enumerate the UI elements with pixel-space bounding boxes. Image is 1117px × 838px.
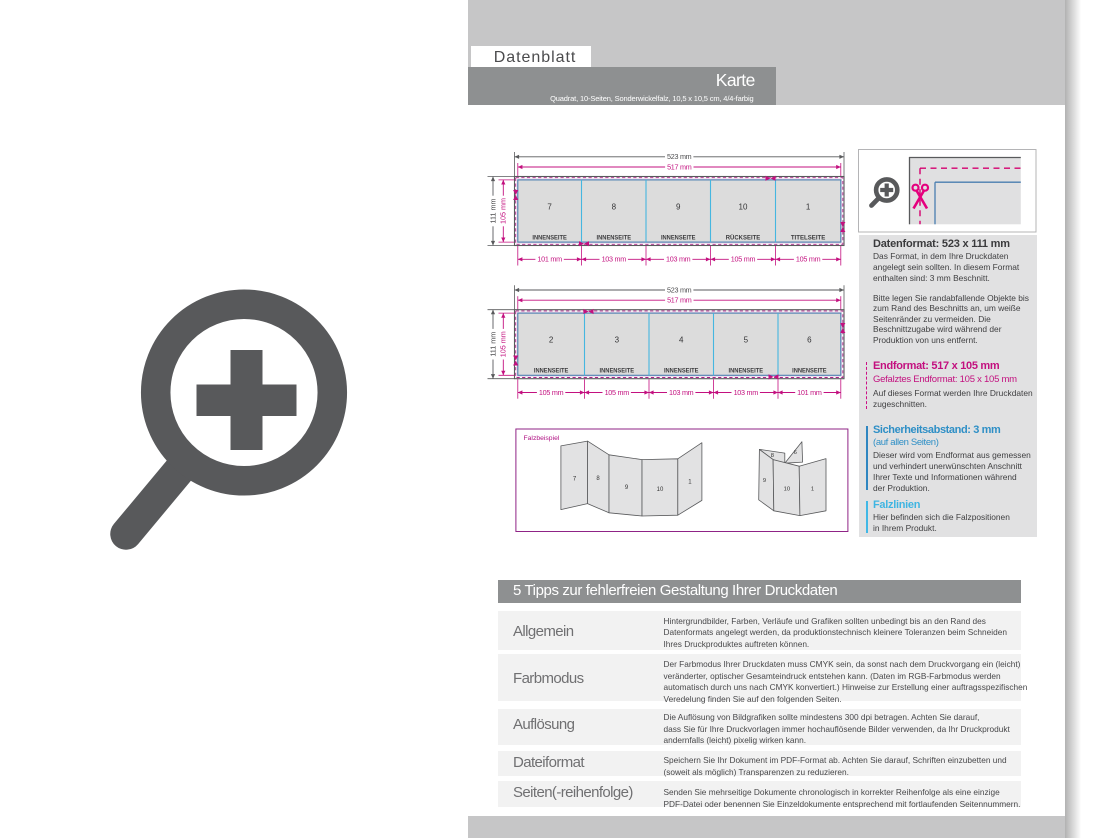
svg-text:INNENSEITE: INNENSEITE [600,368,635,375]
svg-text:Falzbeispiel: Falzbeispiel [524,435,560,442]
svg-text:523 mm: 523 mm [667,285,692,294]
svg-text:103 mm: 103 mm [669,388,694,397]
svg-text:111 mm: 111 mm [488,199,497,224]
svg-text:5: 5 [744,336,749,345]
svg-text:8: 8 [771,453,774,459]
svg-text:10: 10 [784,486,790,492]
svg-text:105 mm: 105 mm [539,388,564,397]
svg-text:1: 1 [806,203,811,212]
svg-text:3: 3 [615,336,620,345]
svg-text:10: 10 [657,487,664,493]
svg-text:103 mm: 103 mm [734,388,759,397]
svg-text:9: 9 [676,203,681,212]
svg-text:111 mm: 111 mm [488,332,497,357]
svg-text:105 mm: 105 mm [499,198,508,224]
svg-text:101 mm: 101 mm [537,255,562,264]
svg-text:6: 6 [807,336,812,345]
svg-text:INNENSEITE: INNENSEITE [729,368,764,375]
svg-text:517 mm: 517 mm [667,296,692,305]
svg-text:INNENSEITE: INNENSEITE [597,234,632,241]
svg-text:105 mm: 105 mm [796,255,821,264]
svg-text:105 mm: 105 mm [605,388,630,397]
svg-text:INNENSEITE: INNENSEITE [664,368,699,375]
svg-text:TITELSEITE: TITELSEITE [791,234,826,241]
svg-text:1: 1 [811,487,814,493]
svg-text:RÜCKSEITE: RÜCKSEITE [726,232,761,241]
svg-text:10: 10 [739,203,748,212]
svg-text:2: 2 [549,336,554,345]
svg-text:INNENSEITE: INNENSEITE [532,234,567,241]
svg-text:105 mm: 105 mm [499,331,508,357]
svg-text:8: 8 [612,203,617,212]
svg-text:9: 9 [763,478,766,484]
svg-text:523 mm: 523 mm [667,152,692,161]
svg-text:6: 6 [794,450,797,456]
svg-text:INNENSEITE: INNENSEITE [534,368,569,375]
svg-text:103 mm: 103 mm [602,255,627,264]
svg-text:7: 7 [547,203,552,212]
svg-text:INNENSEITE: INNENSEITE [661,234,696,241]
svg-text:103 mm: 103 mm [666,255,691,264]
svg-text:517 mm: 517 mm [667,162,692,171]
svg-text:105 mm: 105 mm [731,255,756,264]
svg-text:INNENSEITE: INNENSEITE [792,368,827,375]
svg-text:4: 4 [679,336,684,345]
svg-text:101 mm: 101 mm [797,388,822,397]
